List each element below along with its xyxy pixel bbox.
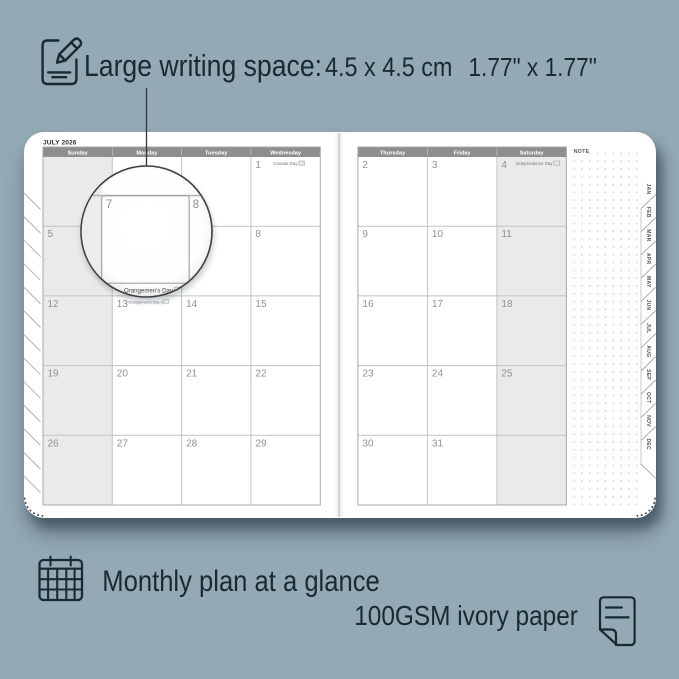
svg-text:Canada Day: Canada Day xyxy=(273,161,298,166)
svg-text:2: 2 xyxy=(362,160,368,171)
svg-text:MAR: MAR xyxy=(645,229,651,241)
svg-text:APR: APR xyxy=(645,253,651,265)
svg-text:11: 11 xyxy=(501,229,512,240)
svg-text:16: 16 xyxy=(362,299,374,310)
svg-text:19: 19 xyxy=(48,369,60,380)
svg-text:24: 24 xyxy=(432,369,444,380)
svg-text:28: 28 xyxy=(186,438,198,449)
svg-text:Tuesday: Tuesday xyxy=(205,150,228,156)
svg-text:20: 20 xyxy=(117,369,129,380)
svg-text:Independence Day: Independence Day xyxy=(516,161,554,166)
svg-text:JULY 2026: JULY 2026 xyxy=(43,140,77,147)
svg-text:JUL: JUL xyxy=(645,323,651,333)
svg-text:18: 18 xyxy=(501,299,513,310)
svg-text:29: 29 xyxy=(255,438,267,449)
svg-text:DEC: DEC xyxy=(645,438,651,450)
svg-text:MAY: MAY xyxy=(645,276,651,288)
svg-text:Friday: Friday xyxy=(454,150,472,156)
svg-text:8: 8 xyxy=(255,229,261,240)
svg-text:13: 13 xyxy=(117,299,129,310)
svg-text:Thursday: Thursday xyxy=(380,150,406,156)
svg-text:14: 14 xyxy=(186,299,198,310)
svg-text:JUN: JUN xyxy=(645,300,651,311)
svg-text:Sunday: Sunday xyxy=(68,150,89,156)
svg-text:4: 4 xyxy=(501,160,507,171)
svg-text:9: 9 xyxy=(362,229,368,240)
svg-text:30: 30 xyxy=(362,438,374,449)
svg-text:12: 12 xyxy=(48,299,60,310)
svg-text:17: 17 xyxy=(432,299,444,310)
svg-text:Saturday: Saturday xyxy=(520,150,545,156)
svg-text:27: 27 xyxy=(117,438,129,449)
svg-text:NOTE: NOTE xyxy=(574,149,590,155)
svg-text:21: 21 xyxy=(186,369,198,380)
svg-text:Monday: Monday xyxy=(136,150,158,156)
svg-text:8: 8 xyxy=(193,199,199,211)
svg-text:25: 25 xyxy=(501,369,513,380)
svg-text:FEB: FEB xyxy=(645,207,651,218)
svg-text:1: 1 xyxy=(255,160,261,171)
svg-text:AUG: AUG xyxy=(645,345,651,357)
svg-text:31: 31 xyxy=(432,438,444,449)
svg-text:NOV: NOV xyxy=(645,415,651,427)
svg-text:5: 5 xyxy=(48,229,54,240)
svg-text:JAN: JAN xyxy=(645,184,651,195)
svg-text:26: 26 xyxy=(48,438,60,449)
svg-text:Wednesday: Wednesday xyxy=(270,150,302,156)
svg-text:15: 15 xyxy=(255,299,267,310)
svg-text:OCT: OCT xyxy=(645,392,651,404)
svg-text:22: 22 xyxy=(255,369,267,380)
svg-text:23: 23 xyxy=(362,369,374,380)
svg-text:SEP: SEP xyxy=(645,369,651,380)
svg-text:3: 3 xyxy=(432,160,438,171)
svg-text:7: 7 xyxy=(106,199,112,211)
svg-text:10: 10 xyxy=(432,229,444,240)
